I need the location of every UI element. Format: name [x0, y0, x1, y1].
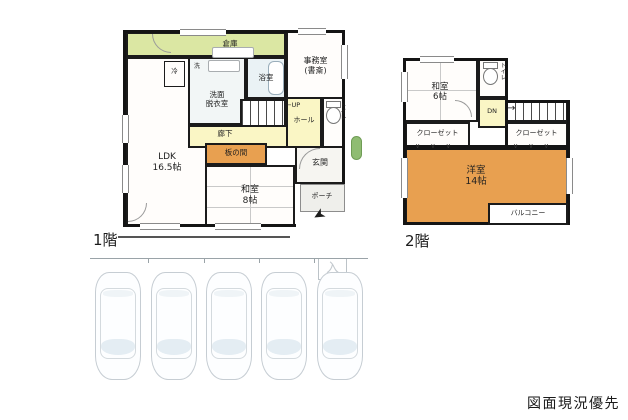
boundary-line	[118, 236, 290, 238]
label-storage: 倉庫	[200, 39, 260, 48]
label-closet-right: クローゼット	[507, 129, 566, 137]
car-windshield	[323, 339, 357, 355]
disclaimer-note: 図面現況優先	[527, 393, 620, 413]
label-washer: 洗	[191, 63, 203, 70]
window	[401, 72, 408, 102]
label-washitsu-6: 和室 6帖	[416, 82, 464, 102]
label-western-room: 洋室 14帖	[448, 165, 504, 188]
car-windshield	[101, 339, 135, 355]
window	[420, 56, 454, 63]
stairs-up	[240, 99, 286, 127]
label-porch: ポーチ	[302, 192, 342, 200]
window	[298, 28, 326, 35]
label-balcony: バルコニー	[492, 209, 564, 217]
label-washroom: 洗面 脱衣室	[192, 90, 242, 108]
car-windshield	[212, 339, 246, 355]
label-closet-left: クローゼット	[407, 129, 468, 137]
car	[317, 272, 363, 380]
label-itanoma: 板の間	[207, 148, 265, 157]
car-windshield	[267, 339, 301, 355]
car-windshield	[157, 339, 191, 355]
label-corridor: 廊下	[205, 129, 245, 138]
label-washitsu-8: 和室 8帖	[228, 185, 272, 207]
window	[122, 115, 129, 143]
car-rear-window	[214, 290, 244, 297]
label-office: 事務室 (書斎)	[288, 56, 343, 75]
car-rear-window	[269, 290, 299, 297]
parking-tick	[148, 258, 149, 263]
parking-tick	[259, 258, 260, 263]
tatami-line	[207, 207, 293, 208]
floor-plan-page: { "meta": { "disclaimer": "図面現況優先" }, "c…	[0, 0, 628, 420]
label-entrance: 玄関	[300, 158, 340, 168]
label-bath: 浴室	[248, 73, 284, 82]
car	[206, 272, 252, 380]
window	[215, 223, 261, 230]
washroom-counter	[208, 60, 240, 72]
window	[401, 158, 408, 198]
folding-door-marks: ∨ ∨ ∨	[513, 142, 553, 150]
window	[180, 29, 226, 36]
car	[95, 272, 141, 380]
car-rear-window	[103, 290, 133, 297]
parking-tick	[314, 258, 315, 263]
car	[151, 272, 197, 380]
parking-line	[90, 258, 368, 259]
car-rear-window	[325, 290, 355, 297]
folding-door-marks: ∨ ∨ ∨	[415, 142, 455, 150]
label-toilet-2f: トイレ	[498, 62, 507, 80]
car-rear-window	[159, 290, 189, 297]
dn-arrow-icon: →	[507, 103, 515, 114]
window	[122, 165, 129, 193]
label-dn: DN	[480, 108, 504, 116]
label-toilet-1f: トイレ	[338, 102, 347, 120]
floor1-title: 1階	[93, 229, 118, 250]
parking-tick	[204, 258, 205, 263]
label-up: ←UP	[286, 101, 300, 109]
label-fridge: 冷	[166, 68, 183, 76]
floor2-title: 2階	[405, 230, 430, 251]
plant-icon	[351, 136, 362, 160]
car	[261, 272, 307, 380]
window	[566, 158, 573, 194]
toilet-icon	[483, 68, 498, 85]
label-ldk: LDK 16.5帖	[138, 152, 196, 174]
storage-counter	[212, 47, 254, 58]
window	[140, 223, 180, 230]
label-hall: ホール	[288, 116, 320, 124]
